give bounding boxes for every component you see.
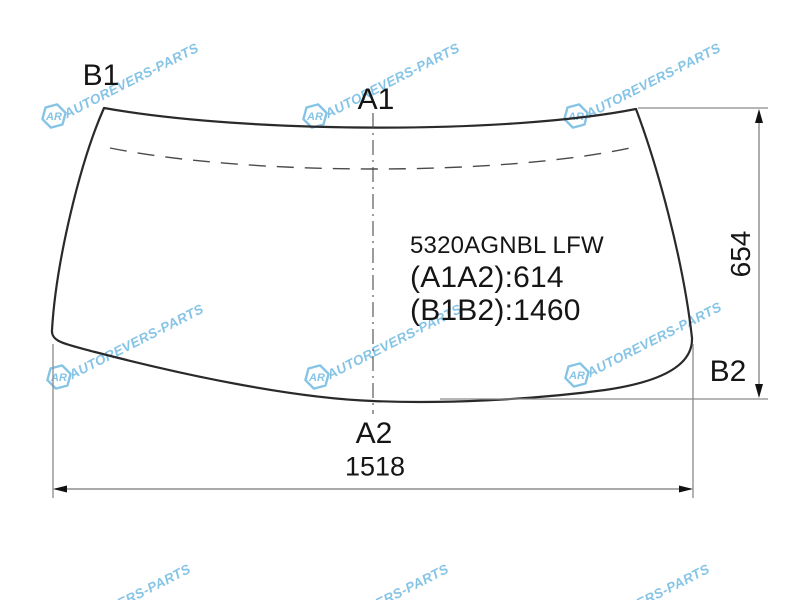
part-code: 5320AGNBL LFW xyxy=(410,232,604,261)
width-value: 1518 xyxy=(345,454,405,481)
dimension-b1b2: (B1B2):1460 xyxy=(410,294,604,328)
top-moulding-dashed-line xyxy=(110,148,630,169)
part-info-block: 5320AGNBL LFW (A1A2):614 (B1B2):1460 xyxy=(410,232,604,328)
label-b1: B1 xyxy=(83,61,120,91)
label-a2: A2 xyxy=(356,419,393,449)
windshield-diagram: AR AUTOREVERS-PARTS AR AUTOREVERS-PARTS … xyxy=(0,0,800,600)
label-a1: A1 xyxy=(358,85,395,115)
drawing-layer xyxy=(0,0,800,600)
dimension-a1a2: (A1A2):614 xyxy=(410,261,604,295)
height-value: 654 xyxy=(727,231,755,278)
label-b2: B2 xyxy=(710,357,747,387)
